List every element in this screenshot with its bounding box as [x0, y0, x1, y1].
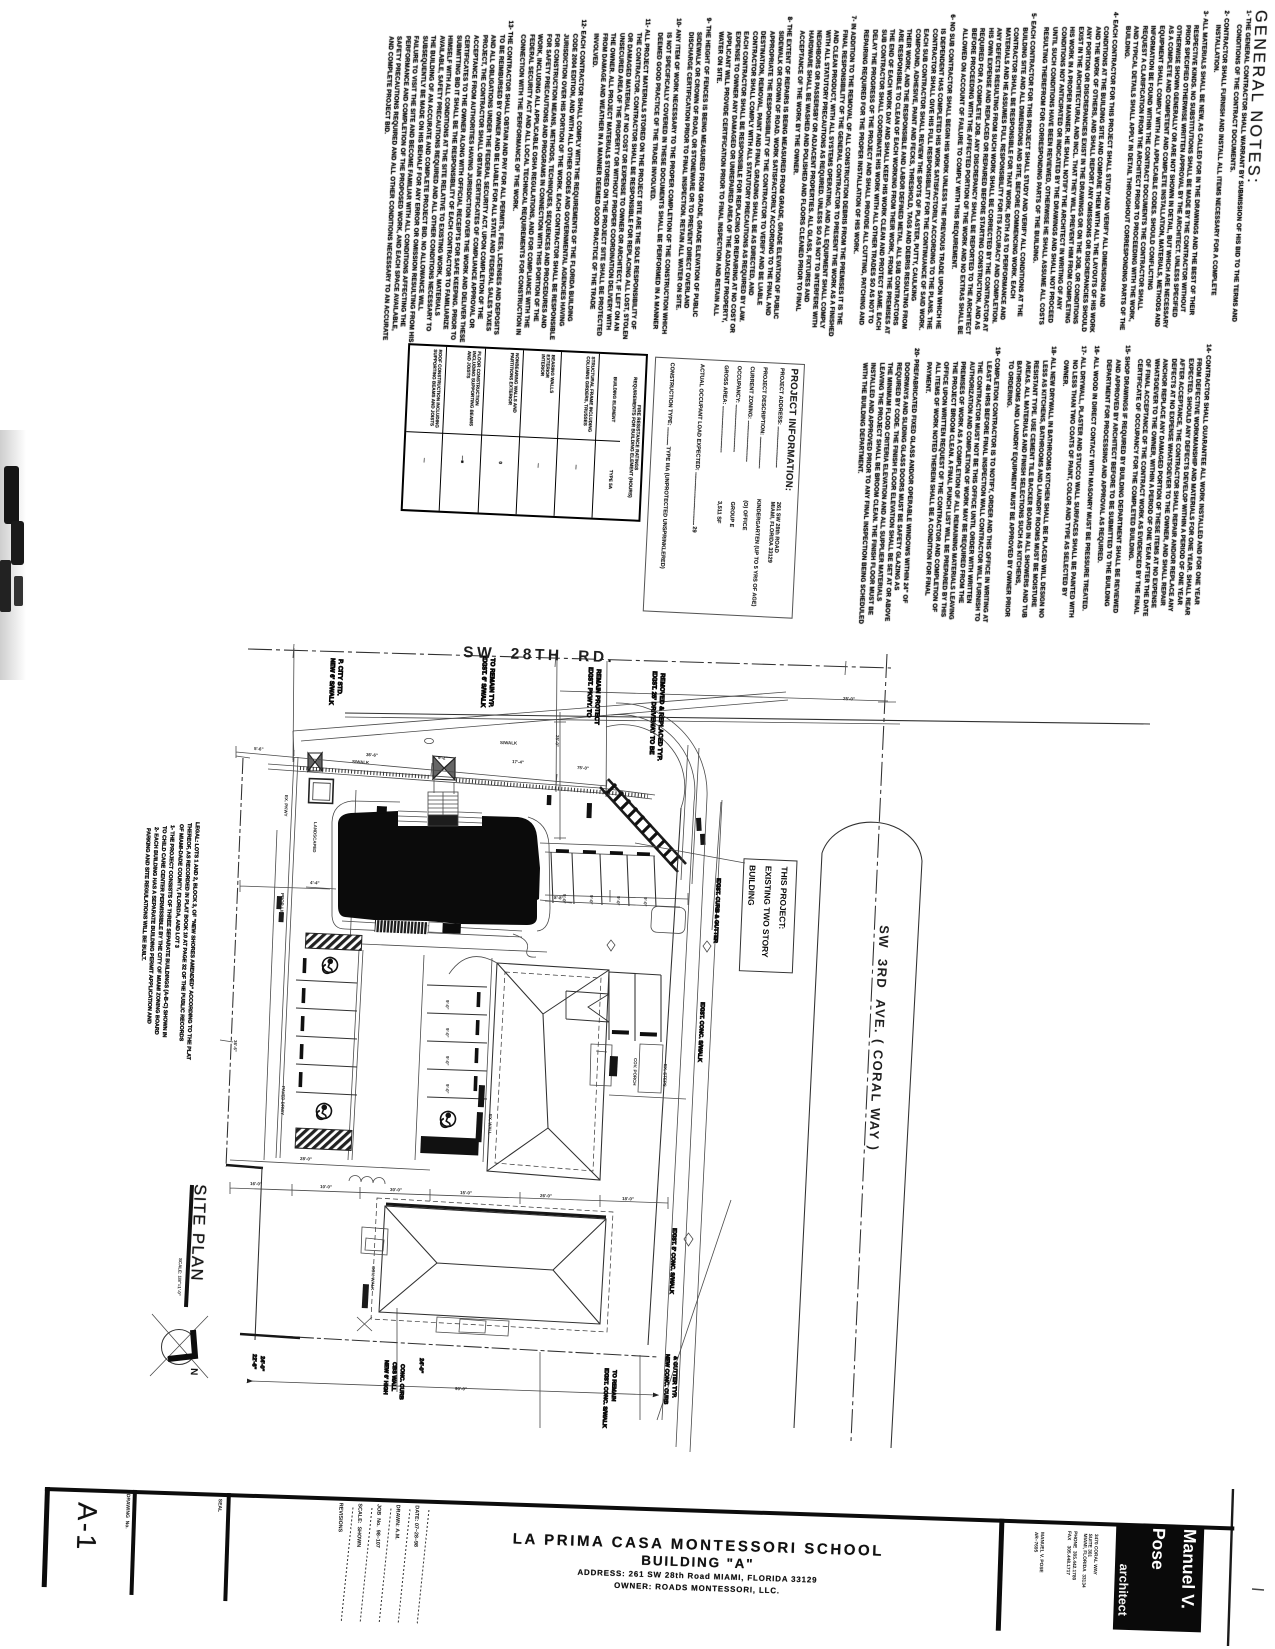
svg-text:EX. STEPS: EX. STEPS: [662, 1064, 668, 1087]
svg-text:9'-0": 9'-0": [445, 1056, 450, 1066]
svg-text:26'-0": 26'-0": [540, 1193, 552, 1198]
svg-text:TO REMAIN: TO REMAIN: [610, 1370, 617, 1402]
svg-text:4'-4": 4'-4": [310, 880, 320, 885]
svg-text:S/WALK: S/WALK: [500, 740, 518, 746]
svg-text:N: N: [188, 1368, 199, 1376]
svg-text:9'-0": 9'-0": [445, 1084, 450, 1094]
svg-text:9'-0": 9'-0": [562, 894, 567, 904]
svg-text:LANDSCAPED: LANDSCAPED: [312, 822, 318, 853]
svg-text:EXIST. CONC. S/WALK: EXIST. CONC. S/WALK: [601, 1368, 609, 1428]
svg-text:9'-0": 9'-0": [445, 1000, 450, 1010]
svg-text:BUILDING: BUILDING: [746, 865, 758, 906]
svg-text:CONC. CURB: CONC. CURB: [398, 1364, 405, 1400]
svg-text:24'-0": 24'-0": [417, 1358, 424, 1374]
svg-text:24'-0": 24'-0": [258, 1356, 265, 1372]
svg-text:EXIST. CONC. S/WALK: EXIST. CONC. S/WALK: [696, 1002, 705, 1062]
svg-text:9'-0": 9'-0": [616, 896, 621, 906]
svg-text:EX. PKWY: EX. PKWY: [283, 795, 289, 817]
svg-text:COV. WALK: COV. WALK: [370, 1266, 376, 1291]
svg-text:EXIST. 6' S/WALK: EXIST. 6' S/WALK: [479, 656, 488, 708]
svg-text:NEW 6' HIGH: NEW 6' HIGH: [382, 1360, 389, 1395]
svg-text:16'-0": 16'-0": [250, 1181, 262, 1186]
svg-text:9'-0": 9'-0": [589, 895, 594, 905]
svg-text:36'-6": 36'-6": [366, 752, 378, 758]
svg-text:17'-4": 17'-4": [512, 759, 524, 765]
svg-text:5'-6": 5'-6": [254, 746, 264, 752]
svg-text:EX. WALL: EX. WALL: [487, 1114, 493, 1135]
svg-text:P. CITY STD.: P. CITY STD.: [336, 659, 344, 696]
svg-text:25'-0": 25'-0": [555, 735, 560, 747]
svg-text:SW 3RD AVE. ( CORAL WAY ): SW 3RD AVE. ( CORAL WAY ): [866, 925, 892, 1152]
svg-text:15'-0": 15'-0": [460, 1190, 472, 1195]
svg-text:9'-0": 9'-0": [643, 897, 648, 907]
svg-text:9'-2": 9'-2": [438, 755, 448, 761]
svg-text:10'-0": 10'-0": [320, 1184, 332, 1189]
svg-text:NEW 6' S/WALK: NEW 6' S/WALK: [327, 658, 336, 706]
svg-text:28'-0": 28'-0": [300, 1156, 312, 1162]
svg-text:22'-6": 22'-6": [250, 1354, 257, 1370]
svg-text:COV. PORCH: COV. PORCH: [632, 1058, 638, 1086]
svg-text:EXIST. PKWY. TO: EXIST. PKWY. TO: [585, 667, 594, 718]
svg-text:PAVED DRWY: PAVED DRWY: [280, 1086, 286, 1115]
svg-text:CBS WALL: CBS WALL: [390, 1362, 397, 1392]
svg-text:25'-0": 25'-0": [843, 696, 855, 701]
svg-text:SCALE: 1/8"=1'-0": SCALE: 1/8"=1'-0": [177, 1258, 183, 1296]
svg-text:90'-0": 90'-0": [455, 1386, 467, 1391]
svg-text:18'-0": 18'-0": [622, 1196, 634, 1201]
svg-text:EXIST. 5' CONC. S/WALK: EXIST. 5' CONC. S/WALK: [668, 1228, 677, 1294]
svg-text:30'-0": 30'-0": [390, 1187, 402, 1192]
svg-text:9'-0": 9'-0": [445, 1028, 450, 1038]
svg-text:75'-0": 75'-0": [577, 765, 589, 771]
svg-text:36'-6": 36'-6": [233, 1040, 238, 1052]
